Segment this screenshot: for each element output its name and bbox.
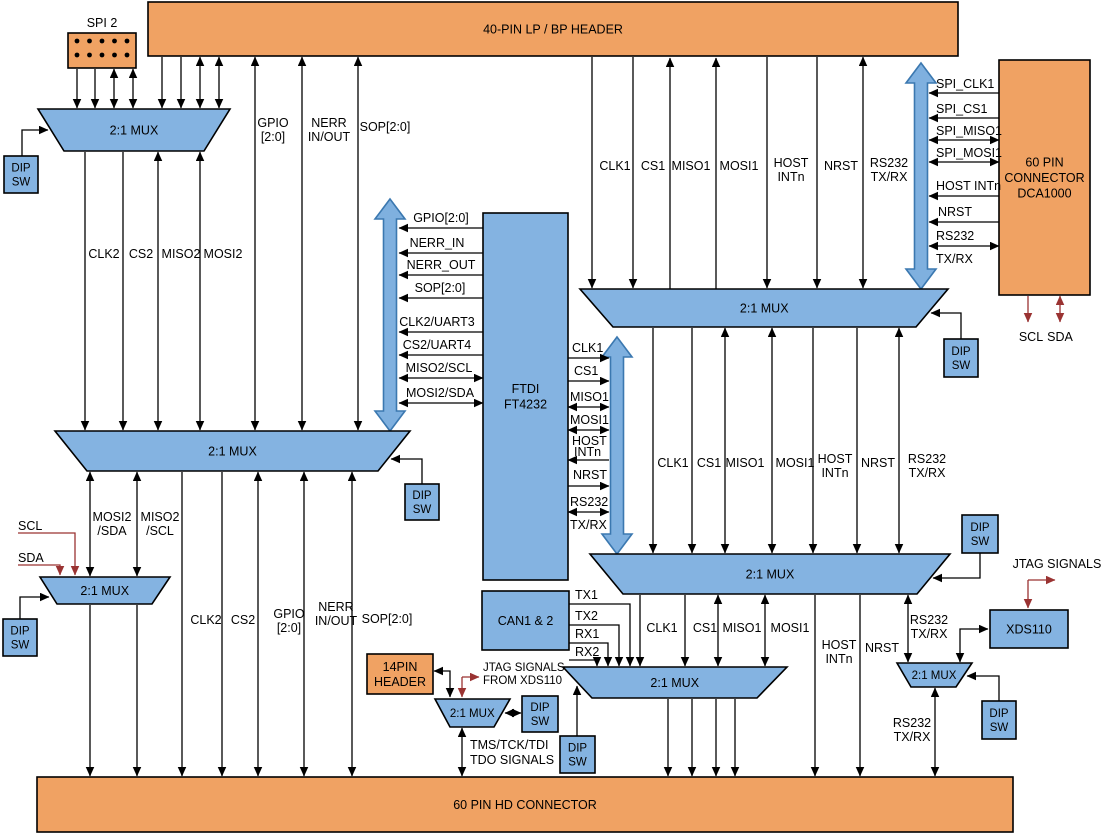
signal-line	[391, 459, 422, 484]
pin-dot	[112, 39, 117, 44]
signal-label: SPI_CLK1	[936, 77, 994, 91]
signal-label: NRST	[938, 205, 972, 219]
signal-label: NRST	[865, 641, 899, 655]
signal-label: RS232TX/RX	[908, 452, 946, 480]
signal-label: SPI_MOSI1	[936, 146, 1002, 160]
signal-label: MISO1	[723, 621, 762, 635]
diagram-canvas: 40-PIN LP / BP HEADER60 PINCONNECTORDCA1…	[0, 0, 1104, 834]
signal-label: MOSI1	[776, 456, 815, 470]
signal-label: MOSI1	[570, 413, 609, 427]
ftdi-ft4232-chip	[483, 213, 568, 580]
signal-label: SCL	[18, 519, 42, 533]
signal-label: SPI_CS1	[936, 102, 987, 116]
signal-label: GPIO[2:0]	[273, 607, 305, 635]
signal-line	[931, 313, 961, 339]
i2c-jtag-signal-line	[18, 565, 60, 575]
signal-label: MISO1	[726, 456, 765, 470]
40pin-lp-bp-header-label: 40-PIN LP / BP HEADER	[483, 22, 623, 36]
signal-label: JTAG SIGNALSFROM XDS110	[483, 662, 565, 687]
signal-label: RX2	[575, 645, 599, 659]
signal-label: CLK1	[599, 159, 630, 173]
signal-label: RS232	[570, 495, 608, 509]
mux-rs232-right-label: 2:1 MUX	[912, 670, 957, 682]
signal-label: RS232	[936, 229, 974, 243]
signal-label: HOSTINTn	[822, 638, 857, 666]
60pin-hd-connector-label: 60 PIN HD CONNECTOR	[453, 798, 597, 812]
signal-label: NRST	[824, 159, 858, 173]
signal-label: MOSI2	[204, 247, 243, 261]
signal-line	[434, 671, 450, 697]
signal-label: NRST	[573, 468, 607, 482]
pin-dot	[100, 39, 105, 44]
signal-label: MOSI1	[771, 621, 810, 635]
signal-label: CLK2	[88, 247, 119, 261]
pin-dot	[75, 39, 80, 44]
signal-label: TMS/TCK/TDITDO SIGNALS	[470, 738, 554, 767]
signal-label: MOSI2/SDA	[93, 510, 132, 538]
signal-label: CS1	[697, 456, 721, 470]
bus-arrow-dca	[906, 63, 936, 289]
signal-label: CLK1	[646, 621, 677, 635]
signal-label: SOP[2:0]	[360, 120, 411, 134]
mux-mid-left-label: 2:1 MUX	[208, 444, 257, 458]
signal-label: NRST	[861, 456, 895, 470]
signal-label: SPI_MISO1	[936, 124, 1002, 138]
signal-line	[22, 130, 48, 156]
mux-jtag-label: 2:1 MUX	[450, 708, 495, 720]
signal-label: TX2	[575, 609, 598, 623]
signal-label: NERR_OUT	[407, 258, 476, 272]
signal-label: CS1	[574, 364, 598, 378]
mux-mid-right-label: 2:1 MUX	[746, 567, 795, 581]
signal-label: CLK2/UART3	[399, 315, 475, 329]
pin-dot	[87, 39, 92, 44]
signal-label: GPIO[2:0]	[257, 116, 289, 144]
signal-label: CLK2	[190, 613, 221, 627]
mux-i2c-left-label: 2:1 MUX	[80, 584, 129, 598]
pin-dot	[87, 53, 92, 58]
pin-dot	[125, 53, 130, 58]
signal-label: RX1	[575, 627, 599, 641]
signal-label: SDA	[18, 551, 44, 565]
signal-label: SDA	[1047, 330, 1073, 344]
signal-line	[20, 597, 49, 619]
signal-label: NERR_IN	[410, 236, 465, 250]
spi2-connector	[68, 33, 136, 68]
pin-dot	[75, 53, 80, 58]
signal-label: CS2	[231, 613, 255, 627]
signal-label: NERRIN/OUT	[308, 116, 351, 144]
mux-bottom-middle-label: 2:1 MUX	[650, 676, 699, 690]
pin-dot	[112, 53, 117, 58]
pin-dot	[100, 53, 105, 58]
mux-top-right-label: 2:1 MUX	[740, 301, 789, 315]
signal-line	[569, 660, 597, 666]
mux-top-left-label: 2:1 MUX	[110, 123, 159, 137]
signal-label: RS232TX/RX	[870, 156, 908, 184]
signal-label: HOST INTn	[936, 179, 1001, 193]
signal-label: MISO1	[570, 390, 609, 404]
signal-label: TX1	[575, 588, 598, 602]
signal-label: CS1	[693, 621, 717, 635]
signal-label: HOSTINTn	[774, 156, 809, 184]
signal-label: RS232TX/RX	[910, 613, 948, 641]
block-diagram: 40-PIN LP / BP HEADER60 PINCONNECTORDCA1…	[0, 0, 1104, 834]
signal-line	[967, 676, 999, 701]
signal-label: MOSI1	[720, 159, 759, 173]
signal-label: HOSTINTn	[818, 452, 853, 480]
signal-label: SOP[2:0]	[362, 612, 413, 626]
signal-label: GPIO[2:0]	[413, 211, 469, 225]
signal-label: SPI 2	[87, 16, 118, 30]
xds110-label: XDS110	[1006, 622, 1052, 636]
signal-label: NERRIN/OUT	[315, 600, 358, 628]
signal-label: MOSI2/SDA	[406, 386, 475, 400]
signal-label: MISO1	[672, 159, 711, 173]
signal-label: MISO2/SCL	[141, 510, 180, 538]
signal-label: SCL	[1019, 330, 1043, 344]
signal-label: INTn	[574, 445, 601, 459]
signal-label: CLK1	[657, 456, 688, 470]
signal-label: TX/RX	[570, 518, 607, 532]
signal-label: CS2/UART4	[403, 338, 472, 352]
can-transceiver-label: CAN1 & 2	[498, 614, 554, 628]
signal-label: TX/RX	[936, 252, 973, 266]
signal-label: CS1	[641, 159, 665, 173]
signal-label: SOP[2:0]	[415, 281, 466, 295]
signal-label: RS232TX/RX	[893, 716, 931, 744]
signal-label: CS2	[129, 247, 153, 261]
signal-label: JTAG SIGNALS	[1013, 557, 1102, 571]
signal-line	[960, 629, 988, 662]
signal-label: MISO2	[162, 247, 201, 261]
pin-dot	[125, 39, 130, 44]
signal-label: MISO2/SCL	[406, 361, 473, 375]
signal-label: CLK1	[572, 341, 603, 355]
